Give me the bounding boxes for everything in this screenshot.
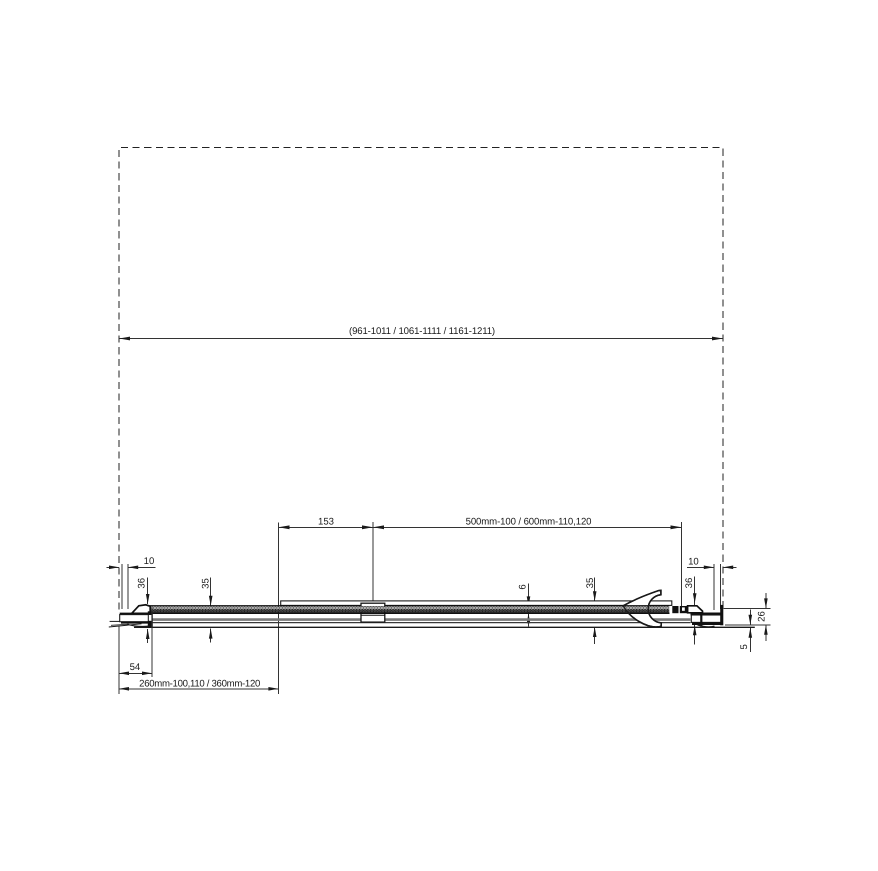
svg-text:26: 26 <box>756 611 767 622</box>
svg-text:36: 36 <box>137 578 148 589</box>
svg-text:36: 36 <box>684 578 695 589</box>
svg-text:35: 35 <box>200 578 211 589</box>
svg-text:153: 153 <box>318 517 334 528</box>
svg-text:6: 6 <box>517 584 528 589</box>
svg-text:500mm-100 / 600mm-110,120: 500mm-100 / 600mm-110,120 <box>466 517 592 528</box>
svg-text:54: 54 <box>130 662 141 673</box>
svg-text:10: 10 <box>688 557 699 568</box>
svg-text:10: 10 <box>144 556 155 567</box>
svg-text:5: 5 <box>739 644 750 649</box>
svg-text:260mm-100,110 / 360mm-120: 260mm-100,110 / 360mm-120 <box>139 678 260 689</box>
svg-text:35: 35 <box>585 578 596 589</box>
svg-text:(961-1011 / 1061-1111 / 1161-1: (961-1011 / 1061-1111 / 1161-1211) <box>349 326 495 337</box>
